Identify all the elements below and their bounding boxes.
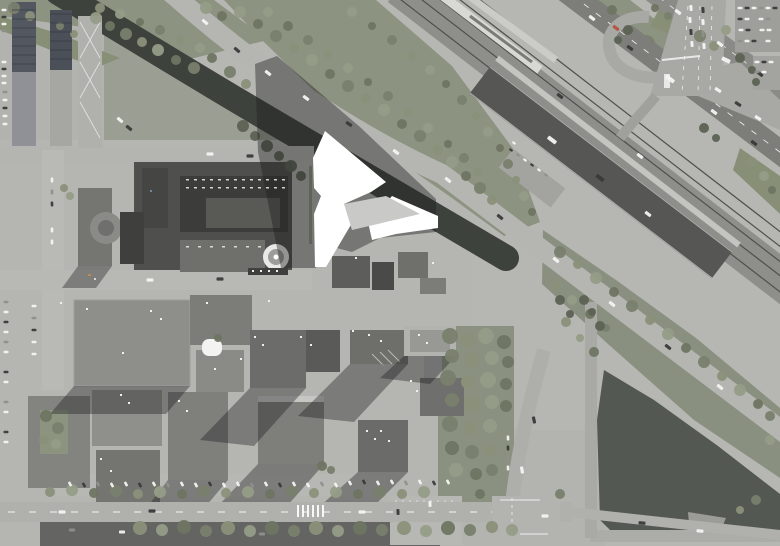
tree <box>361 93 371 103</box>
vehicle <box>2 75 7 77</box>
tree <box>342 80 354 92</box>
tree <box>8 2 20 14</box>
tree <box>747 157 757 167</box>
tree <box>387 35 397 45</box>
tree <box>425 65 435 75</box>
tree <box>445 349 459 363</box>
tree <box>445 441 459 455</box>
building <box>180 240 265 272</box>
roof-vent <box>218 179 221 181</box>
roof-vent <box>198 246 201 248</box>
hedge-line <box>309 166 312 244</box>
tree <box>137 37 147 47</box>
construction-material <box>88 274 91 276</box>
tree <box>221 521 235 535</box>
tree <box>171 55 181 65</box>
tree <box>474 182 486 194</box>
vehicle <box>760 29 765 32</box>
aerial-screenshot: Grayscale aerial orthophoto with white a… <box>0 0 780 546</box>
rooftop-unit <box>352 330 354 332</box>
roof-vent <box>234 179 237 181</box>
office-slab <box>250 330 306 388</box>
vehicle <box>4 401 9 404</box>
tree <box>496 144 504 152</box>
building <box>142 168 168 228</box>
tree <box>353 521 367 535</box>
street-junction <box>492 496 560 540</box>
vehicle <box>755 61 760 64</box>
rooftop-unit <box>150 190 152 192</box>
roof-vent <box>210 187 213 189</box>
tree <box>414 130 426 142</box>
tree <box>768 186 776 194</box>
tree <box>512 176 520 184</box>
tree <box>253 19 263 29</box>
tree <box>39 435 49 445</box>
tree <box>645 315 655 325</box>
roof-vent <box>234 246 237 248</box>
vehicle <box>752 40 757 43</box>
tree <box>464 396 480 412</box>
tree <box>551 281 561 291</box>
tree <box>378 104 390 116</box>
tree <box>485 395 499 409</box>
vehicle <box>755 71 760 74</box>
building <box>420 278 446 294</box>
rooftop-unit <box>206 302 208 304</box>
roof-vent <box>250 179 253 181</box>
vehicle <box>51 201 54 206</box>
tree <box>45 487 55 497</box>
tree <box>177 520 191 534</box>
shaded-tree <box>555 295 565 305</box>
tree <box>464 524 476 536</box>
tree <box>156 524 168 536</box>
rooftop-unit <box>276 270 278 272</box>
vehicle <box>507 435 510 440</box>
tree <box>270 30 282 42</box>
tree <box>721 25 731 35</box>
vehicle <box>2 9 7 11</box>
vehicle <box>32 353 37 356</box>
vehicle <box>51 239 54 244</box>
vehicle <box>2 61 7 63</box>
vehicle <box>701 19 704 25</box>
roof-vent <box>274 187 277 189</box>
tree <box>133 489 143 499</box>
aerial-map <box>0 0 780 546</box>
tree <box>214 334 222 342</box>
rooftop-unit <box>310 344 312 346</box>
rooftop-unit <box>426 342 428 344</box>
vehicle <box>4 321 9 324</box>
tree <box>154 486 166 498</box>
rooftop-unit <box>150 310 152 312</box>
vehicle <box>32 317 37 320</box>
rooftop-unit <box>380 430 382 432</box>
vehicle <box>396 509 399 515</box>
vehicle <box>696 529 703 533</box>
tree <box>52 422 64 434</box>
tree <box>446 156 458 168</box>
tree <box>528 208 536 216</box>
tree <box>554 246 566 258</box>
roof-vent <box>194 187 197 189</box>
building <box>398 252 428 278</box>
rooftop-unit <box>260 270 262 272</box>
tree <box>289 43 299 53</box>
vehicle <box>773 7 778 10</box>
roof-vent <box>234 187 237 189</box>
vehicle <box>701 31 704 37</box>
vehicle <box>689 5 692 11</box>
vehicle <box>3 99 8 101</box>
vehicle <box>507 465 510 470</box>
tree <box>420 525 432 537</box>
vehicle <box>4 301 9 304</box>
tree <box>368 22 376 30</box>
vehicle <box>51 227 54 232</box>
roof-vent <box>226 187 229 189</box>
vehicle <box>4 411 9 414</box>
tree <box>485 351 499 365</box>
vehicle <box>428 501 431 507</box>
vehicle <box>752 7 757 10</box>
vehicle <box>766 18 771 21</box>
office-slab <box>74 300 190 386</box>
tree <box>486 521 498 533</box>
roof-vent <box>266 187 269 189</box>
tree <box>105 21 115 31</box>
round-tower-core <box>98 220 114 236</box>
tree <box>765 435 775 445</box>
construction-material <box>94 278 96 280</box>
tree <box>303 35 313 45</box>
vehicle <box>51 177 54 182</box>
rooftop-unit <box>268 300 270 302</box>
building <box>332 256 370 288</box>
tree <box>244 525 256 537</box>
shaded-tree <box>595 321 605 331</box>
tree <box>364 78 372 86</box>
tree <box>397 119 407 129</box>
vehicle <box>4 341 9 344</box>
tree <box>442 328 458 344</box>
tree <box>461 375 475 389</box>
vehicle <box>359 510 366 513</box>
roof-vent <box>210 246 213 248</box>
vehicle <box>149 509 156 512</box>
tree <box>242 486 254 498</box>
tree <box>152 44 164 56</box>
tree <box>500 400 512 412</box>
roof-vent <box>258 187 261 189</box>
tree <box>698 356 710 368</box>
vehicle <box>746 29 751 32</box>
tree <box>286 485 298 497</box>
tree <box>457 95 467 105</box>
vehicle <box>32 305 37 308</box>
roof-vent <box>250 187 253 189</box>
tree <box>332 525 344 537</box>
roof-vent <box>266 179 269 181</box>
rooftop-unit <box>178 400 180 402</box>
tree <box>483 419 497 433</box>
tree <box>200 2 212 14</box>
vehicle <box>688 17 691 23</box>
office-slab <box>196 350 244 392</box>
vehicle <box>69 529 75 532</box>
tree <box>195 43 205 53</box>
tree <box>397 489 407 499</box>
tree <box>330 486 342 498</box>
tree <box>502 356 514 368</box>
tree <box>626 300 638 312</box>
tree <box>66 192 74 200</box>
tree <box>343 63 353 73</box>
tree <box>573 259 583 269</box>
shaded-tree <box>566 310 574 318</box>
tree <box>383 91 393 101</box>
shaded-tree <box>588 308 596 316</box>
roof-vent <box>222 246 225 248</box>
tree <box>734 384 746 396</box>
roof-vent <box>186 246 189 248</box>
tree <box>751 495 761 505</box>
shaded-tree <box>699 123 709 133</box>
tree <box>500 378 512 390</box>
vehicle <box>738 7 743 10</box>
tree <box>263 7 273 17</box>
rooftop-unit <box>120 394 122 396</box>
rooftop-unit <box>86 308 88 310</box>
roof-vent <box>202 179 205 181</box>
rooftop-unit <box>416 390 418 392</box>
rooftop-unit <box>355 257 357 259</box>
vehicle <box>207 152 214 155</box>
tree <box>459 153 469 163</box>
rooftop-unit <box>268 270 270 272</box>
tree <box>681 343 691 353</box>
tree <box>408 52 416 60</box>
roof-vent <box>246 246 249 248</box>
rooftop-unit <box>300 336 302 338</box>
rooftop-unit <box>418 334 420 336</box>
vehicle <box>2 16 7 18</box>
rooftop-unit <box>410 380 412 382</box>
tree <box>265 489 275 499</box>
vehicle <box>59 510 66 513</box>
tree <box>353 489 363 499</box>
vehicle <box>759 18 764 21</box>
tree <box>607 5 617 15</box>
roof-vent <box>282 179 285 181</box>
rooftop-unit <box>432 262 434 264</box>
tree <box>376 524 388 536</box>
vehicle <box>762 71 767 74</box>
tree <box>397 521 411 535</box>
vehicle <box>507 445 510 450</box>
tree <box>120 28 132 40</box>
roof-vent <box>186 187 189 189</box>
tree <box>503 159 513 169</box>
shaded-tree <box>614 36 622 44</box>
vehicle <box>702 43 705 49</box>
tree <box>217 11 227 21</box>
warehouse-roof <box>50 70 72 146</box>
tree <box>662 328 674 340</box>
roof-vent <box>242 187 245 189</box>
tree <box>472 112 480 120</box>
rooftop-unit <box>128 402 130 404</box>
tree <box>51 439 61 449</box>
tree <box>464 352 480 368</box>
tree <box>324 50 332 58</box>
tree <box>442 416 458 432</box>
shaded-tree <box>712 134 720 142</box>
roof-vent <box>242 179 245 181</box>
tree <box>567 295 577 305</box>
vehicle <box>4 381 9 384</box>
tree <box>484 444 496 456</box>
tree <box>449 463 463 477</box>
tree <box>133 521 147 535</box>
tree <box>177 489 187 499</box>
tree <box>651 4 659 12</box>
vehicle <box>3 123 8 125</box>
vehicle <box>4 311 9 314</box>
tree <box>576 334 584 342</box>
rooftop-unit <box>214 368 216 370</box>
tree <box>90 12 102 24</box>
warehouse-truss-roof <box>78 16 102 148</box>
tree <box>589 347 599 357</box>
tree <box>374 486 386 498</box>
tree <box>753 399 763 409</box>
tree <box>423 123 433 133</box>
rooftop-unit <box>262 344 264 346</box>
tree <box>441 521 455 535</box>
tree <box>461 171 471 181</box>
vehicle <box>745 18 750 21</box>
vehicle <box>119 531 125 534</box>
roof-vent <box>210 179 213 181</box>
rooftop-unit <box>110 470 112 472</box>
rooftop-unit <box>388 440 390 442</box>
vehicle <box>769 61 774 64</box>
vehicle <box>32 329 37 332</box>
tree <box>609 287 619 297</box>
rooftop-unit <box>122 352 124 354</box>
vehicle <box>762 61 767 64</box>
rooftop-unit <box>380 340 382 342</box>
shaded-tree <box>752 78 760 86</box>
tree <box>497 335 511 349</box>
vehicle <box>217 277 224 280</box>
tree <box>40 410 52 422</box>
vehicle <box>507 455 510 460</box>
tree <box>224 66 236 78</box>
vehicle <box>32 341 37 344</box>
tree <box>465 445 479 459</box>
tree <box>317 461 327 471</box>
tree <box>306 54 318 66</box>
vehicle <box>689 29 692 35</box>
vehicle <box>4 351 9 354</box>
tree <box>555 489 565 499</box>
vehicle <box>766 7 771 10</box>
tree <box>221 488 231 498</box>
vehicle <box>147 278 154 281</box>
vehicle <box>542 514 549 517</box>
vehicle <box>4 331 9 334</box>
tree <box>483 127 493 137</box>
vehicle <box>2 82 7 84</box>
vehicle <box>745 40 750 43</box>
vehicle <box>3 107 8 109</box>
building <box>372 262 394 290</box>
vehicle <box>738 18 743 21</box>
shaded-tree <box>735 53 745 63</box>
tree <box>241 79 251 89</box>
rooftop-unit <box>160 318 162 320</box>
tree <box>66 484 78 496</box>
roof-vent <box>218 187 221 189</box>
tree <box>487 195 497 205</box>
vehicle <box>690 41 693 47</box>
rooftop-unit <box>254 336 256 338</box>
vehicle <box>701 7 704 13</box>
office-slab <box>350 330 408 364</box>
tree <box>474 168 482 176</box>
vehicle <box>3 115 8 117</box>
tree <box>136 18 144 26</box>
vehicle <box>759 7 764 10</box>
tree <box>207 53 217 63</box>
rooftop-unit <box>366 430 368 432</box>
tree <box>444 140 452 148</box>
vehicle <box>4 441 9 444</box>
tree <box>480 372 496 388</box>
vehicle <box>739 29 744 32</box>
tree <box>325 69 335 79</box>
warehouse-roof <box>12 72 36 146</box>
tree <box>89 488 99 498</box>
tree <box>561 317 571 327</box>
tree <box>664 12 672 20</box>
tree <box>590 272 602 284</box>
tree <box>486 464 498 476</box>
roof-vent <box>226 179 229 181</box>
shaded-tree <box>623 25 633 35</box>
tree <box>70 30 78 38</box>
tree <box>461 333 475 347</box>
tree <box>445 393 459 407</box>
roof-vent <box>202 187 205 189</box>
tree <box>470 468 482 480</box>
tree <box>717 371 727 381</box>
dike-path <box>585 302 597 538</box>
tree <box>519 191 529 201</box>
rooftop-unit <box>100 458 102 460</box>
vehicle <box>766 40 771 43</box>
tree <box>188 62 200 74</box>
tree <box>506 524 518 536</box>
vehicle <box>2 30 7 32</box>
tree <box>475 489 485 499</box>
tree <box>309 488 319 498</box>
rooftop-unit <box>368 334 370 336</box>
